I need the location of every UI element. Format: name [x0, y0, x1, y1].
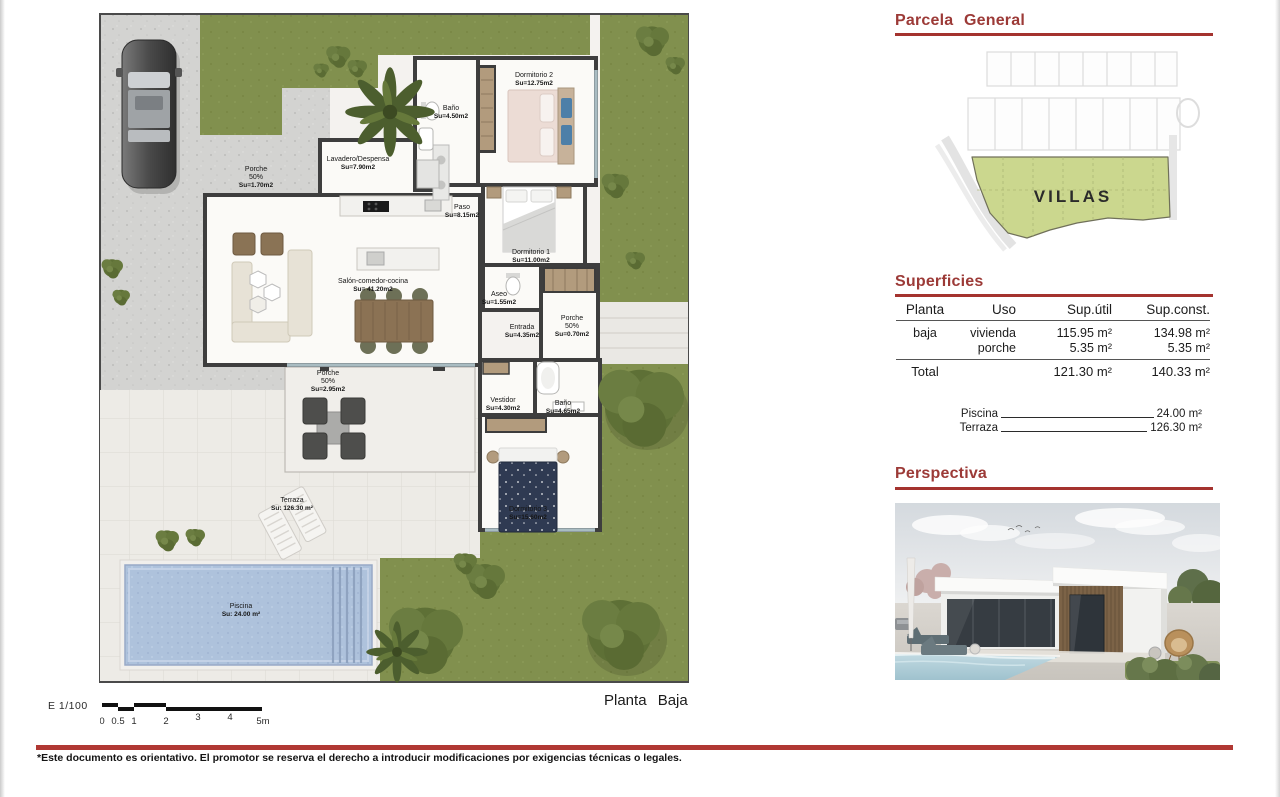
svg-text:0.5: 0.5	[111, 716, 124, 727]
cell-sup-util: 115.95 m²	[1016, 326, 1112, 340]
scale-label: E 1/100	[48, 700, 88, 712]
footer-accent-bar	[36, 745, 1233, 750]
table-row: baja vivienda 115.95 m² 134.98 m²	[896, 326, 1210, 340]
extra-label: Terraza	[952, 422, 998, 434]
svg-text:5m: 5m	[256, 716, 269, 727]
room-label-aseo: AseoSu=1.55m2	[482, 291, 516, 307]
extra-value: 24.00 m²	[1157, 408, 1202, 420]
superficies-table: Planta Uso Sup.útil Sup.const. baja vivi…	[896, 303, 1210, 380]
cell-planta: baja	[896, 326, 954, 340]
room-label-porche-1: Porche50%Su=1.70m2	[239, 166, 273, 190]
cell-total-util: 121.30 m²	[1016, 365, 1112, 379]
cell-uso: porche	[954, 341, 1016, 355]
table-total-row: Total 121.30 m² 140.33 m²	[896, 365, 1210, 379]
table-divider	[896, 359, 1210, 360]
table-row: porche 5.35 m² 5.35 m²	[896, 341, 1210, 355]
extra-row-terraza: Terraza 126.30 m²	[952, 421, 1202, 434]
perspectiva-title: Perspectiva	[895, 465, 987, 483]
header-sup-const: Sup.const.	[1112, 303, 1210, 317]
extra-label: Piscina	[952, 408, 998, 420]
villa-left-block	[935, 577, 1067, 649]
scale-bar: 0 0.5 1 2 3 4 5m	[100, 701, 280, 729]
svg-text:1: 1	[131, 716, 136, 727]
room-label-dormitorio-2: Dormitorio 2Su=12.75m2	[515, 72, 553, 88]
cell-planta	[896, 341, 954, 355]
floor-plan-drawing	[95, 10, 705, 685]
room-label-entrada: EntradaSu=4.35m2	[505, 324, 539, 340]
svg-text:4: 4	[227, 712, 232, 723]
room-label-bano-1: BañoSu=4.50m2	[434, 105, 468, 121]
cell-total-const: 140.33 m²	[1112, 365, 1210, 379]
superficies-title: Superficies	[895, 273, 983, 291]
parcela-rule	[895, 33, 1213, 36]
page-left-edge	[0, 0, 5, 797]
cell-sup-const: 134.98 m²	[1112, 326, 1210, 340]
extra-row-piscina: Piscina 24.00 m²	[952, 407, 1202, 420]
parcela-title: Parcela General	[895, 12, 1025, 30]
entrance-walkway	[598, 302, 688, 364]
svg-text:2: 2	[163, 716, 168, 727]
header-sup-util: Sup.útil	[1016, 303, 1112, 317]
superficies-header-row: Planta Uso Sup.útil Sup.const.	[896, 303, 1210, 317]
page-right-edge	[1275, 0, 1280, 797]
room-label-vestidor: VestidorSu=4.30m2	[486, 397, 520, 413]
room-label-salon: Salón-comedor-cocinaSu= 41.20m2	[338, 278, 408, 294]
header-uso: Uso	[954, 303, 1016, 317]
perspective-render	[895, 503, 1220, 680]
cell-uso: vivienda	[954, 326, 1016, 340]
room-label-terraza: TerrazaSu: 126.30 m²	[271, 497, 313, 513]
room-label-lavadero: Lavadero/DespensaSu=7.90m2	[327, 156, 390, 172]
villas-label: VILLAS	[1034, 187, 1112, 206]
room-label-porche-2: Porche50%Su=0.70m2	[555, 315, 589, 339]
svg-text:3: 3	[195, 712, 200, 723]
room-label-piscina: PiscinaSu: 24.00 m²	[222, 603, 260, 619]
room-label-bano-2: BañoSu=4.65m2	[546, 400, 580, 416]
cell-sup-const: 5.35 m²	[1112, 341, 1210, 355]
cell-sup-util: 5.35 m²	[1016, 341, 1112, 355]
table-divider	[896, 320, 1210, 321]
room-label-dormitorio-1: Dormitorio 1Su=11.00m2	[512, 249, 550, 265]
cell-total-label: Total	[896, 365, 954, 379]
footer-disclaimer: *Este documento es orientativo. El promo…	[37, 752, 682, 764]
extra-surfaces: Piscina 24.00 m² Terraza 126.30 m²	[952, 407, 1202, 435]
extra-value: 126.30 m²	[1150, 422, 1202, 434]
room-label-paso: PasoSu=8.15m2	[445, 204, 479, 220]
header-planta: Planta	[896, 303, 954, 317]
floor-plan-area: Porche50%Su=1.70m2 Lavadero/DespensaSu=7…	[95, 10, 705, 685]
car	[116, 40, 182, 194]
room-label-porche-3: Porche50%Su=2.95m2	[311, 370, 345, 394]
room-label-dormitorio-3: Dormitorio 3Su=15.60m2	[509, 506, 547, 522]
extra-rule	[1001, 417, 1154, 418]
extra-rule	[1001, 431, 1147, 432]
plan-title: Planta Baja	[604, 692, 688, 709]
svg-text:0: 0	[100, 716, 105, 727]
parcela-map: VILLAS	[935, 50, 1215, 258]
villa-right-block	[1053, 567, 1167, 653]
superficies-rule	[895, 294, 1213, 297]
perspectiva-rule	[895, 487, 1213, 490]
